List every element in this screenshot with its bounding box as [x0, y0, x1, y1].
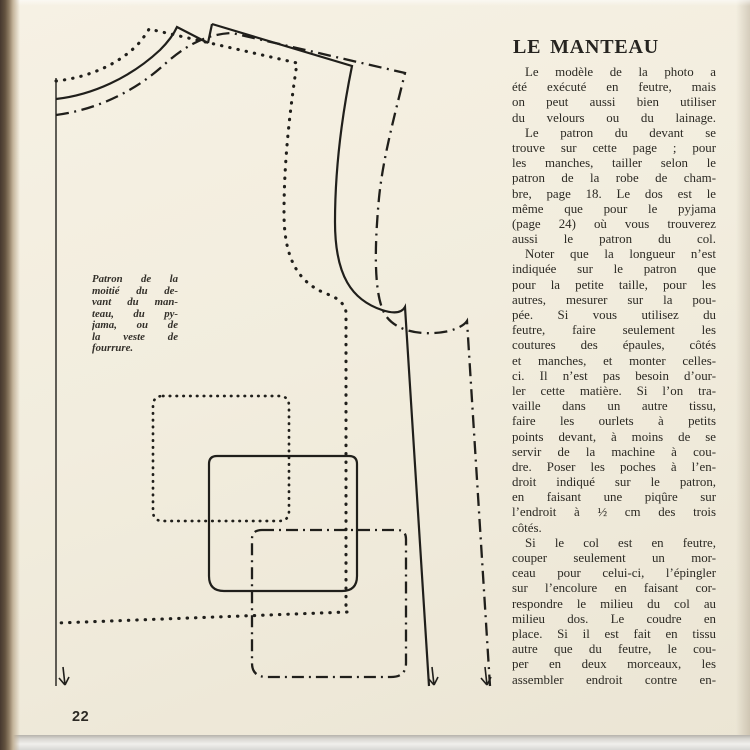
- text-line: moitié du de-: [92, 286, 178, 298]
- text-line: aussi le patron du col.: [512, 232, 716, 247]
- dashdot-pocket: [252, 530, 406, 677]
- text-line: du velours ou du lainage.: [512, 111, 716, 126]
- text-line: et manches, et monter celles-: [512, 354, 716, 369]
- text-line: fourrure.: [92, 343, 178, 355]
- text-line: couper seulement un mor-: [512, 551, 716, 566]
- article-title: LE MANTEAU: [513, 36, 716, 58]
- page-number: 22: [72, 709, 89, 725]
- page-top-edge: [0, 0, 750, 6]
- paragraph: Le patron du devant setrouve sur cette p…: [512, 126, 716, 248]
- text-line: autres, mesurer sur la pou-: [512, 293, 716, 308]
- dashdot-pattern-outline: [56, 33, 490, 686]
- text-line: pée. Si vous utilisez du: [512, 308, 716, 323]
- paragraph: Le modèle de la photo aété exécuté en fe…: [512, 65, 716, 126]
- text-line: trouve sur cette page ; pour: [512, 141, 716, 156]
- text-line: sur l’encolure en faisant cor-: [512, 581, 716, 596]
- text-line: patron de la robe de cham-: [512, 171, 716, 186]
- text-line: place. Si il est fait en tissu: [512, 627, 716, 642]
- dotted-pocket: [153, 396, 289, 521]
- text-line: ceau pour celui-ci, l’épingler: [512, 566, 716, 581]
- book-page-photo: Patron de lamoitié du de-vant du man-tea…: [0, 0, 750, 750]
- text-line: coutures des épaules, côtés: [512, 338, 716, 353]
- text-line: Le modèle de la photo a: [512, 65, 716, 80]
- text-line: (page 24) où vous trouverez: [512, 217, 716, 232]
- text-line: indiquée sur le patron que: [512, 262, 716, 277]
- text-line: autre que du feutre, le cou-: [512, 642, 716, 657]
- paragraph: Noter que la longueur n’estindiquée sur …: [512, 247, 716, 536]
- text-line: l’endroit à ½ cm des trois: [512, 505, 716, 520]
- text-line: même que pour le pyjama: [512, 202, 716, 217]
- solid-pattern-outline: [56, 24, 429, 686]
- diagram-caption: Patron de lamoitié du de-vant du man-tea…: [92, 274, 178, 355]
- down-arrow-icon: [59, 667, 69, 685]
- text-line: ler cette matière. Si l’on tra-: [512, 384, 716, 399]
- page-bottom-edge: [0, 735, 750, 750]
- text-line: on peut aussi bien utiliser: [512, 95, 716, 110]
- text-line: été exécuté en feutre, mais: [512, 80, 716, 95]
- text-line: en faisant une piqûre sur: [512, 490, 716, 505]
- text-line: assembler endroit contre en-: [512, 673, 716, 688]
- book-spine-shadow: [0, 0, 20, 750]
- paragraph: Si le col est en feutre,couper seulement…: [512, 536, 716, 688]
- text-line: points devant, à moins de se: [512, 430, 716, 445]
- text-line: faire les ourlets à petits: [512, 414, 716, 429]
- text-line: feutre, faire seulement les: [512, 323, 716, 338]
- text-line: milieu dos. Le coudre en: [512, 612, 716, 627]
- text-line: dre. Poser les poches à l’en-: [512, 460, 716, 475]
- text-line: Patron de la: [92, 274, 178, 286]
- text-line: droit indiqué sur le patron,: [512, 475, 716, 490]
- text-line: Le patron du devant se: [512, 126, 716, 141]
- text-line: respondre le milieu du col au: [512, 597, 716, 612]
- text-line: vaille dans un autre tissu,: [512, 399, 716, 414]
- text-line: pour la petite taille, pour les: [512, 278, 716, 293]
- text-line: teau, du py-: [92, 309, 178, 321]
- text-line: vant du man-: [92, 297, 178, 309]
- text-line: Si le col est en feutre,: [512, 536, 716, 551]
- text-line: les manches, tailler selon le: [512, 156, 716, 171]
- solid-pocket: [209, 456, 357, 591]
- text-line: bre, page 18. Le dos est le: [512, 187, 716, 202]
- page: Patron de lamoitié du de-vant du man-tea…: [0, 0, 750, 750]
- page-right-shade: [736, 0, 750, 750]
- text-line: jama, ou de: [92, 320, 178, 332]
- text-line: per en deux morceaux, les: [512, 657, 716, 672]
- text-line: la veste de: [92, 332, 178, 344]
- text-line: côtés.: [512, 521, 716, 536]
- text-line: servir de la machine à cou-: [512, 445, 716, 460]
- text-line: Noter que la longueur n’est: [512, 247, 716, 262]
- text-line: ci. Il n’est pas besoin d’our-: [512, 369, 716, 384]
- article-column: LE MANTEAU Le modèle de la photo aété ex…: [512, 36, 716, 688]
